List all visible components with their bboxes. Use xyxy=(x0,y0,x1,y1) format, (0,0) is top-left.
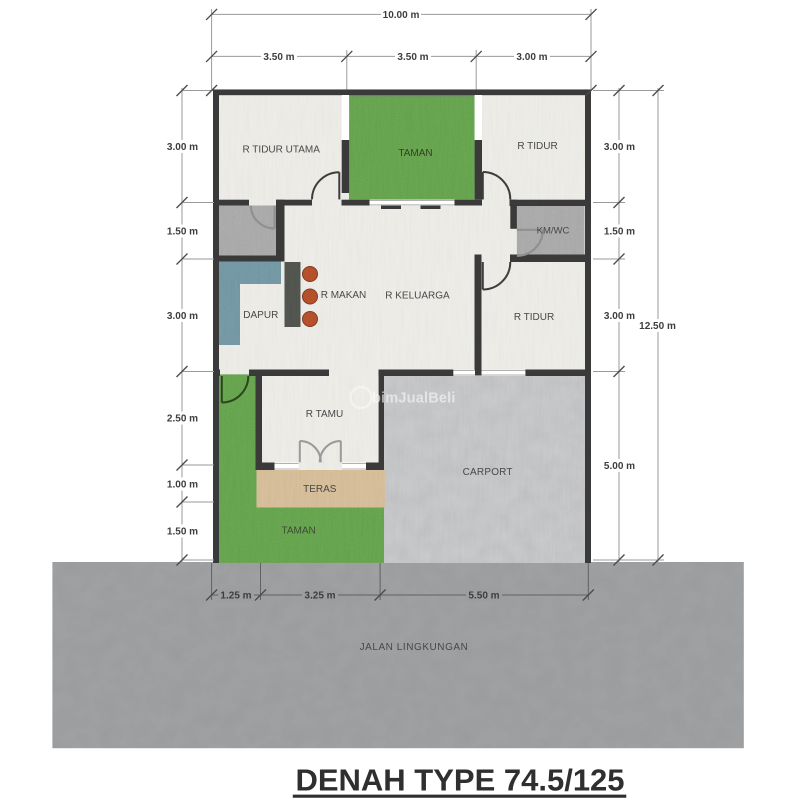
svg-text:1.50 m: 1.50 m xyxy=(167,527,198,538)
svg-text:5.50 m: 5.50 m xyxy=(468,591,499,602)
svg-text:12.50 m: 12.50 m xyxy=(639,321,676,332)
svg-text:TERAS: TERAS xyxy=(303,484,337,495)
svg-text:3.00 m: 3.00 m xyxy=(167,311,198,322)
svg-text:3.00 m: 3.00 m xyxy=(604,142,635,153)
svg-text:3.25 m: 3.25 m xyxy=(304,591,335,602)
svg-text:DENAH TYPE 74.5/125: DENAH TYPE 74.5/125 xyxy=(295,763,624,798)
svg-text:1.25 m: 1.25 m xyxy=(220,591,251,602)
svg-text:10.00 m: 10.00 m xyxy=(383,10,420,21)
svg-text:R KELUARGA: R KELUARGA xyxy=(385,291,450,302)
svg-text:TAMAN: TAMAN xyxy=(398,148,432,159)
svg-text:1.00 m: 1.00 m xyxy=(167,480,198,491)
svg-text:JALAN LINGKUNGAN: JALAN LINGKUNGAN xyxy=(360,642,469,653)
svg-text:R TAMU: R TAMU xyxy=(306,409,343,420)
svg-text:3.00 m: 3.00 m xyxy=(604,311,635,322)
svg-text:3.00 m: 3.00 m xyxy=(516,52,547,63)
svg-text:R TIDUR: R TIDUR xyxy=(514,312,554,323)
svg-text:TAMAN: TAMAN xyxy=(281,526,315,537)
svg-text:1.50 m: 1.50 m xyxy=(604,227,635,238)
svg-text:KM/WC: KM/WC xyxy=(537,226,570,237)
svg-text:R TIDUR: R TIDUR xyxy=(517,141,557,152)
svg-text:DAPUR: DAPUR xyxy=(243,310,278,321)
svg-text:CARPORT: CARPORT xyxy=(463,467,513,478)
svg-text:3.50 m: 3.50 m xyxy=(397,52,428,63)
svg-text:2.50 m: 2.50 m xyxy=(167,414,198,425)
svg-text:R MAKAN: R MAKAN xyxy=(321,290,367,301)
svg-text:1.50 m: 1.50 m xyxy=(167,227,198,238)
svg-text:5.00 m: 5.00 m xyxy=(604,461,635,472)
svg-text:R TIDUR UTAMA: R TIDUR UTAMA xyxy=(242,144,320,155)
svg-text:3.50 m: 3.50 m xyxy=(263,52,294,63)
svg-text:3.00 m: 3.00 m xyxy=(167,142,198,153)
svg-text:bimJualBeli: bimJualBeli xyxy=(372,391,456,407)
